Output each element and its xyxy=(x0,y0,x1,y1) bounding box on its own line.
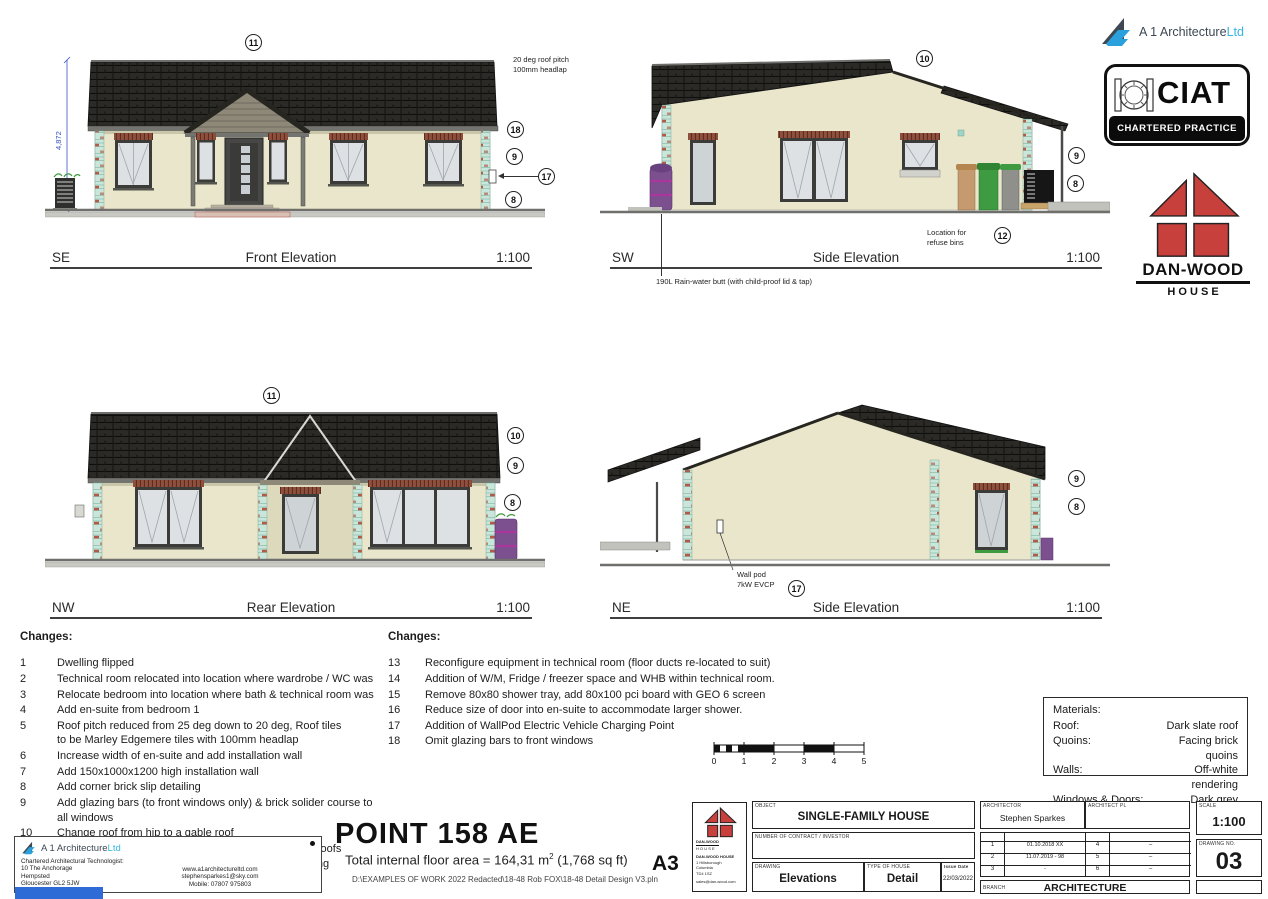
refuse-bins xyxy=(956,163,1021,210)
change-marker: 17 xyxy=(538,168,555,185)
change-marker: 8 xyxy=(1067,175,1084,192)
branch-value: ARCHITECTURE xyxy=(981,882,1189,894)
ne-side-elevation-drawing xyxy=(600,392,1110,577)
change-number: 17 xyxy=(388,719,425,734)
firm-email: stephensparkes1@sky.com xyxy=(165,873,275,880)
rain-water-butt xyxy=(495,514,517,560)
version-date: – xyxy=(1110,866,1191,876)
change-text: Remove 80x80 shower tray, add 80x100 pci… xyxy=(425,688,780,703)
change-text: Add 150x1000x1200 high installation wall xyxy=(57,765,382,780)
change-number: 14 xyxy=(388,672,425,687)
evcp-pod xyxy=(489,170,496,183)
window xyxy=(282,494,319,554)
change-marker: 8 xyxy=(504,494,521,511)
change-item: 14Addition of W/M, Fridge / freezer spac… xyxy=(388,672,780,687)
elevation-scale: 1:100 xyxy=(496,250,530,265)
danwood-word: H O U S E xyxy=(1136,286,1250,298)
window xyxy=(113,140,154,191)
orientation: NE xyxy=(612,600,631,615)
version-date: - xyxy=(1005,866,1086,876)
scale-tick: 3 xyxy=(802,756,807,766)
a1-ltd-text: Ltd xyxy=(108,843,121,854)
changes-heading: Changes: xyxy=(388,630,780,645)
scale-bar: 0 1 2 3 4 5 xyxy=(706,740,876,766)
changes-list-right: Changes: 13Reconfigure equipment in tech… xyxy=(388,630,780,750)
change-text: Reduce size of door into en-suite to acc… xyxy=(425,703,780,718)
orientation: SE xyxy=(52,250,70,265)
change-marker: 11 xyxy=(245,34,262,51)
empty-cell xyxy=(1196,880,1262,894)
issue-date-value: 22/03/2022 xyxy=(942,876,974,882)
title-block: DAN-WOOD H O U S E DAN-WOOD HOUSE 1 Hill… xyxy=(692,798,1266,895)
nw-rear-elevation-drawing xyxy=(45,388,545,578)
change-marker: 8 xyxy=(505,191,522,208)
elevation-scale: 1:100 xyxy=(1066,600,1100,615)
drawing-no-label: DRAWING NO. xyxy=(1199,841,1235,847)
ciat-badge: CIAT CHARTERED PRACTICE xyxy=(1104,64,1250,146)
heat-pump xyxy=(53,174,80,211)
a1-brand-text: A 1 Architecture xyxy=(41,843,108,854)
change-marker: 8 xyxy=(1068,498,1085,515)
material-row: Roof:Dark slate roof xyxy=(1053,719,1238,734)
project-title: POINT 158 AE xyxy=(335,818,539,851)
meter-box xyxy=(75,505,84,517)
change-item: 1Dwelling flipped xyxy=(20,656,382,671)
window xyxy=(423,140,464,187)
version-date: – xyxy=(1110,842,1191,854)
change-text: Add glazing bars (to front windows only)… xyxy=(57,796,382,825)
change-item: 2Technical room relocated into location … xyxy=(20,672,382,687)
version-no: 3 xyxy=(981,866,1005,876)
firm-block: A 1 ArchitectureLtd Chartered Architectu… xyxy=(14,836,322,893)
a1-brand-text: A 1 Architecture xyxy=(1139,25,1227,39)
sw-elevation-label: SW Side Elevation 1:100 xyxy=(610,250,1102,269)
change-marker: 9 xyxy=(506,148,523,165)
change-marker: 9 xyxy=(1068,147,1085,164)
ne-elevation-label: NE Side Elevation 1:100 xyxy=(610,600,1102,619)
architect-value: Stephen Sparkes xyxy=(981,813,1084,823)
material-label: Walls: xyxy=(1053,763,1161,793)
architect-pl-label: ARCHITECT PL xyxy=(1088,803,1126,809)
drawing-label: DRAWING xyxy=(755,864,780,870)
change-number: 1 xyxy=(20,656,57,671)
wallpod-evcp xyxy=(717,520,723,533)
blue-banner xyxy=(15,887,103,899)
ciat-acronym: CIAT xyxy=(1157,75,1231,111)
drawing-value: Elevations xyxy=(753,873,863,885)
change-text: Dwelling flipped xyxy=(57,656,382,671)
change-text: Technical room relocated into location w… xyxy=(57,672,382,687)
window xyxy=(267,140,289,185)
dot-icon xyxy=(310,841,315,846)
danwood-name: DAN-WOOD xyxy=(1136,260,1250,284)
change-number: 3 xyxy=(20,688,57,703)
danwood-house-icon xyxy=(703,806,737,838)
window xyxy=(195,140,217,185)
rain-water-butt xyxy=(1041,538,1053,560)
window xyxy=(368,487,472,550)
change-item: 5Roof pitch reduced from 25 deg down to … xyxy=(20,719,382,748)
scale-tick: 1 xyxy=(742,756,747,766)
type-of-house-cell: TYPE OF HOUSE Detail xyxy=(864,862,941,892)
scale-tick: 2 xyxy=(772,756,777,766)
elevation-title: Front Elevation xyxy=(246,250,337,265)
contract-label: NUMBER OF CONTRACT / INVESTOR xyxy=(755,834,850,840)
materials-box: Materials: Roof:Dark slate roof Quoins:F… xyxy=(1043,697,1248,776)
danwood-mini-line: TD4 1SZ xyxy=(696,871,743,877)
issue-date-label: Issue Date xyxy=(944,864,969,869)
change-text: Roof pitch reduced from 25 deg down to 2… xyxy=(57,719,382,748)
firm-line: Hempsted xyxy=(21,873,124,880)
drawing-cell: DRAWING Elevations xyxy=(752,862,864,892)
materials-heading: Materials: xyxy=(1053,703,1238,718)
window xyxy=(975,490,1008,553)
change-item: 9Add glazing bars (to front windows only… xyxy=(20,796,382,825)
rain-butt-leader xyxy=(661,214,662,276)
paper-size: A3 xyxy=(652,852,679,876)
material-label: Quoins: xyxy=(1053,734,1161,764)
scale-label: SCALE xyxy=(1199,803,1216,809)
scale-tick: 5 xyxy=(862,756,867,766)
change-item: 13Reconfigure equipment in technical roo… xyxy=(388,656,780,671)
drawing-no-value: 03 xyxy=(1197,848,1261,876)
elevation-title: Rear Elevation xyxy=(247,600,336,615)
change-item: 16Reduce size of door into en-suite to a… xyxy=(388,703,780,718)
change-number: 5 xyxy=(20,719,57,748)
drawing-no-cell: DRAWING NO. 03 xyxy=(1196,839,1262,877)
change-marker: 12 xyxy=(994,227,1011,244)
firm-contacts: www.a1architectureltd.com stephensparkes… xyxy=(165,866,275,888)
change-marker: 9 xyxy=(1068,470,1085,487)
a1-logo-icon xyxy=(1098,14,1134,50)
architect-label: ARCHITECTOR xyxy=(983,803,1021,809)
change-item: 7Add 150x1000x1200 high installation wal… xyxy=(20,765,382,780)
material-value: Facing brick quoins xyxy=(1161,734,1238,764)
change-number: 9 xyxy=(20,796,57,825)
sw-side-elevation-drawing xyxy=(600,42,1110,222)
version-no: 5 xyxy=(1086,854,1110,866)
a1-ltd-text: Ltd xyxy=(1227,25,1244,39)
window xyxy=(328,140,369,187)
version-no: 2 xyxy=(981,854,1005,866)
window xyxy=(780,138,848,202)
architect-pl-cell: ARCHITECT PL xyxy=(1085,801,1190,829)
scale-cell: SCALE 1:100 xyxy=(1196,801,1262,835)
elevation-scale: 1:100 xyxy=(496,600,530,615)
floor-area-suffix: (1,768 sq ft) xyxy=(554,852,628,867)
contract-cell: NUMBER OF CONTRACT / INVESTOR xyxy=(752,832,975,859)
change-item: 3Relocate bedroom into location where ba… xyxy=(20,688,382,703)
branch-cell: BRANCH ARCHITECTURE xyxy=(980,880,1190,894)
type-label: TYPE OF HOUSE xyxy=(867,864,910,870)
roof-pitch-note: 20 deg roof pitch 100mm headlap xyxy=(513,55,603,75)
floor-area: Total internal floor area = 164,31 m2 (1… xyxy=(345,852,628,867)
firm-line: 10 The Anchorage xyxy=(21,865,124,872)
firm-mobile: Mobile: 07807 975803 xyxy=(165,881,275,888)
orientation: SW xyxy=(612,250,634,265)
change-number: 15 xyxy=(388,688,425,703)
change-marker: 11 xyxy=(263,387,280,404)
nw-elevation-label: NW Rear Elevation 1:100 xyxy=(50,600,532,619)
title-block-logo-cell: DAN-WOOD H O U S E DAN-WOOD HOUSE 1 Hill… xyxy=(692,802,747,892)
version-no: 4 xyxy=(1086,842,1110,854)
change-number: 8 xyxy=(20,780,57,795)
danwood-mini-name: DAN-WOOD xyxy=(696,839,719,846)
danwood-mini-line: sales@dan-wood.com xyxy=(696,879,743,885)
change-text: Reconfigure equipment in technical room … xyxy=(425,656,780,671)
changes-heading: Changes: xyxy=(20,630,382,645)
height-dimension: 4,872 xyxy=(54,131,63,150)
change-marker: 10 xyxy=(507,427,524,444)
change-marker: 9 xyxy=(507,457,524,474)
ciat-tagline: CHARTERED PRACTICE xyxy=(1109,116,1245,141)
version-table: VERSION DATE VERSION DATE 1 01.10.2018 X… xyxy=(980,832,1190,877)
object-label: OBJECT xyxy=(755,803,776,809)
architect-cell: ARCHITECTOR Stephen Sparkes xyxy=(980,801,1085,829)
danwood-logo: DAN-WOOD H O U S E xyxy=(1136,168,1250,298)
version-date: 11.07.2019 - 98 xyxy=(1005,854,1086,866)
window xyxy=(900,140,940,177)
change-item: 6Increase width of en-suite and add inst… xyxy=(20,749,382,764)
change-text: Relocate bedroom into location where bat… xyxy=(57,688,382,703)
rain-butt-note: 190L Rain-water butt (with child-proof l… xyxy=(656,277,896,287)
danwood-house-icon xyxy=(1145,168,1241,260)
issue-date-cell: Issue Date 22/03/2022 xyxy=(941,862,975,892)
danwood-mini-word: H O U S E xyxy=(696,846,743,852)
elevation-scale: 1:100 xyxy=(1066,250,1100,265)
change-item: 15Remove 80x80 shower tray, add 80x100 p… xyxy=(388,688,780,703)
change-marker: 10 xyxy=(916,50,933,67)
drawing-sheet: 4,872 xyxy=(0,0,1268,899)
change-text: Addition of WallPod Electric Vehicle Cha… xyxy=(425,719,780,734)
elevation-title: Side Elevation xyxy=(813,600,899,615)
type-value: Detail xyxy=(865,873,940,885)
firm-line: Chartered Architectural Technologist: xyxy=(21,858,124,865)
change-item: 8Add corner brick slip detailing xyxy=(20,780,382,795)
change-number: 18 xyxy=(388,734,425,749)
material-row: Quoins:Facing brick quoins xyxy=(1053,734,1238,764)
change-number: 13 xyxy=(388,656,425,671)
material-value: Dark slate roof xyxy=(1161,719,1238,734)
floor-area-text: Total internal floor area = 164,31 m xyxy=(345,852,549,867)
material-value: Off-white rendering xyxy=(1161,763,1238,793)
change-item: 17Addition of WallPod Electric Vehicle C… xyxy=(388,719,780,734)
change-number: 4 xyxy=(20,703,57,718)
scale-value: 1:100 xyxy=(1197,814,1261,829)
version-no: 6 xyxy=(1086,866,1110,876)
a1-logo-icon xyxy=(20,840,37,856)
vent xyxy=(958,130,964,136)
refuse-bins-note: Location for refuse bins xyxy=(927,228,987,248)
scale-tick: 4 xyxy=(832,756,837,766)
change-item: 4Add en-suite from bedroom 1 xyxy=(20,703,382,718)
front-door xyxy=(225,138,263,206)
firm-website: www.a1architectureltd.com xyxy=(165,866,275,873)
change-marker: 18 xyxy=(507,121,524,138)
se-elevation-label: SE Front Elevation 1:100 xyxy=(50,250,532,269)
window xyxy=(133,487,204,550)
elevation-title: Side Elevation xyxy=(813,250,899,265)
a1-architecture-logo: A 1 ArchitectureLtd xyxy=(1098,12,1258,52)
change-text: Add en-suite from bedroom 1 xyxy=(57,703,382,718)
change-number: 16 xyxy=(388,703,425,718)
scale-tick: 0 xyxy=(712,756,717,766)
window xyxy=(690,140,716,205)
material-label: Roof: xyxy=(1053,719,1161,734)
change-marker: 17 xyxy=(788,580,805,597)
ciat-emblem-icon xyxy=(1113,73,1155,117)
object-value: SINGLE-FAMILY HOUSE xyxy=(753,811,974,823)
material-row: Walls:Off-white rendering xyxy=(1053,763,1238,793)
file-path: D:\EXAMPLES OF WORK 2022 Redacted\18-48 … xyxy=(352,875,658,884)
change-number: 2 xyxy=(20,672,57,687)
marker-arrow xyxy=(503,176,538,177)
orientation: NW xyxy=(52,600,75,615)
change-text: Add corner brick slip detailing xyxy=(57,780,382,795)
change-text: Addition of W/M, Fridge / freezer space … xyxy=(425,672,780,687)
version-date: 01.10.2018 XX xyxy=(1005,842,1086,854)
rain-water-butt xyxy=(650,164,672,211)
change-text: Increase width of en-suite and add insta… xyxy=(57,749,382,764)
change-number: 7 xyxy=(20,765,57,780)
marker-arrowhead xyxy=(498,173,504,179)
a1-architecture-logo-small: A 1 ArchitectureLtd xyxy=(20,840,121,856)
object-cell: OBJECT SINGLE-FAMILY HOUSE xyxy=(752,801,975,829)
version-date: – xyxy=(1110,854,1191,866)
version-no: 1 xyxy=(981,842,1005,854)
se-front-elevation-drawing: 4,872 xyxy=(45,38,545,224)
change-number: 6 xyxy=(20,749,57,764)
